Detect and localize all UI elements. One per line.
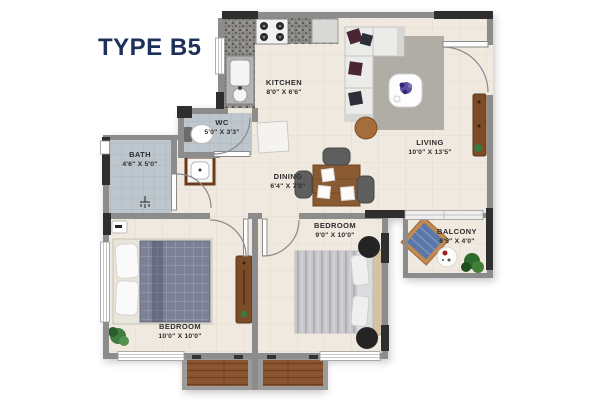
fridge-icon (312, 19, 338, 43)
balcony-table (437, 247, 457, 267)
bed-right (295, 249, 382, 335)
kitchen-table (257, 121, 289, 153)
washbasin-icon (186, 157, 214, 184)
stove-icon (256, 19, 288, 44)
kitchen-sink-icon (226, 56, 254, 104)
plan-title: TYPE B5 (98, 34, 202, 62)
nightstand-top (358, 236, 380, 258)
bath-floor (103, 140, 172, 213)
floorplan-canvas: TYPE B5 KITCHEN 8'0" X 6'6" WC 5'0" X 3'… (0, 0, 600, 400)
side-stool (355, 117, 377, 139)
dining-table (313, 165, 360, 206)
ac-switch-box (112, 221, 127, 233)
toilet-icon (184, 125, 213, 144)
wardrobe (236, 256, 252, 323)
nightstand-bottom (356, 327, 378, 349)
floorplan-drawing (0, 0, 600, 400)
bed-left (113, 239, 212, 324)
coffee-table (389, 74, 422, 107)
shoe-console (473, 94, 486, 156)
